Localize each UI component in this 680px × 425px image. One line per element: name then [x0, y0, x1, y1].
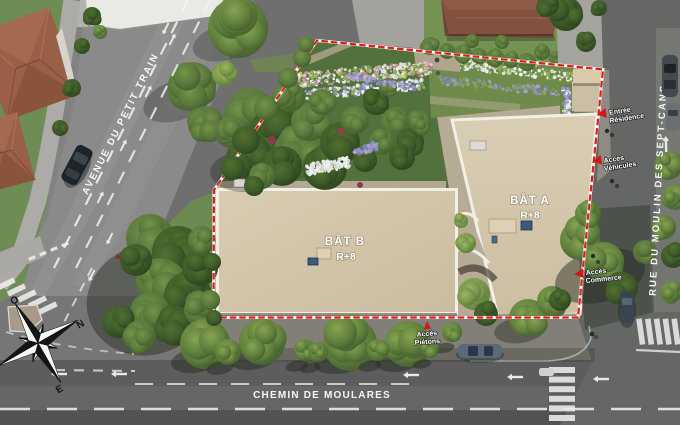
svg-text:BÂT B: BÂT B	[325, 235, 365, 248]
svg-text:R+8: R+8	[336, 251, 356, 263]
svg-text:BÂT A: BÂT A	[510, 194, 550, 207]
svg-text:R+8: R+8	[520, 210, 540, 222]
svg-text:CHEMIN DE MOULARES: CHEMIN DE MOULARES	[253, 390, 391, 401]
svg-text:Accès: Accès	[416, 330, 437, 338]
